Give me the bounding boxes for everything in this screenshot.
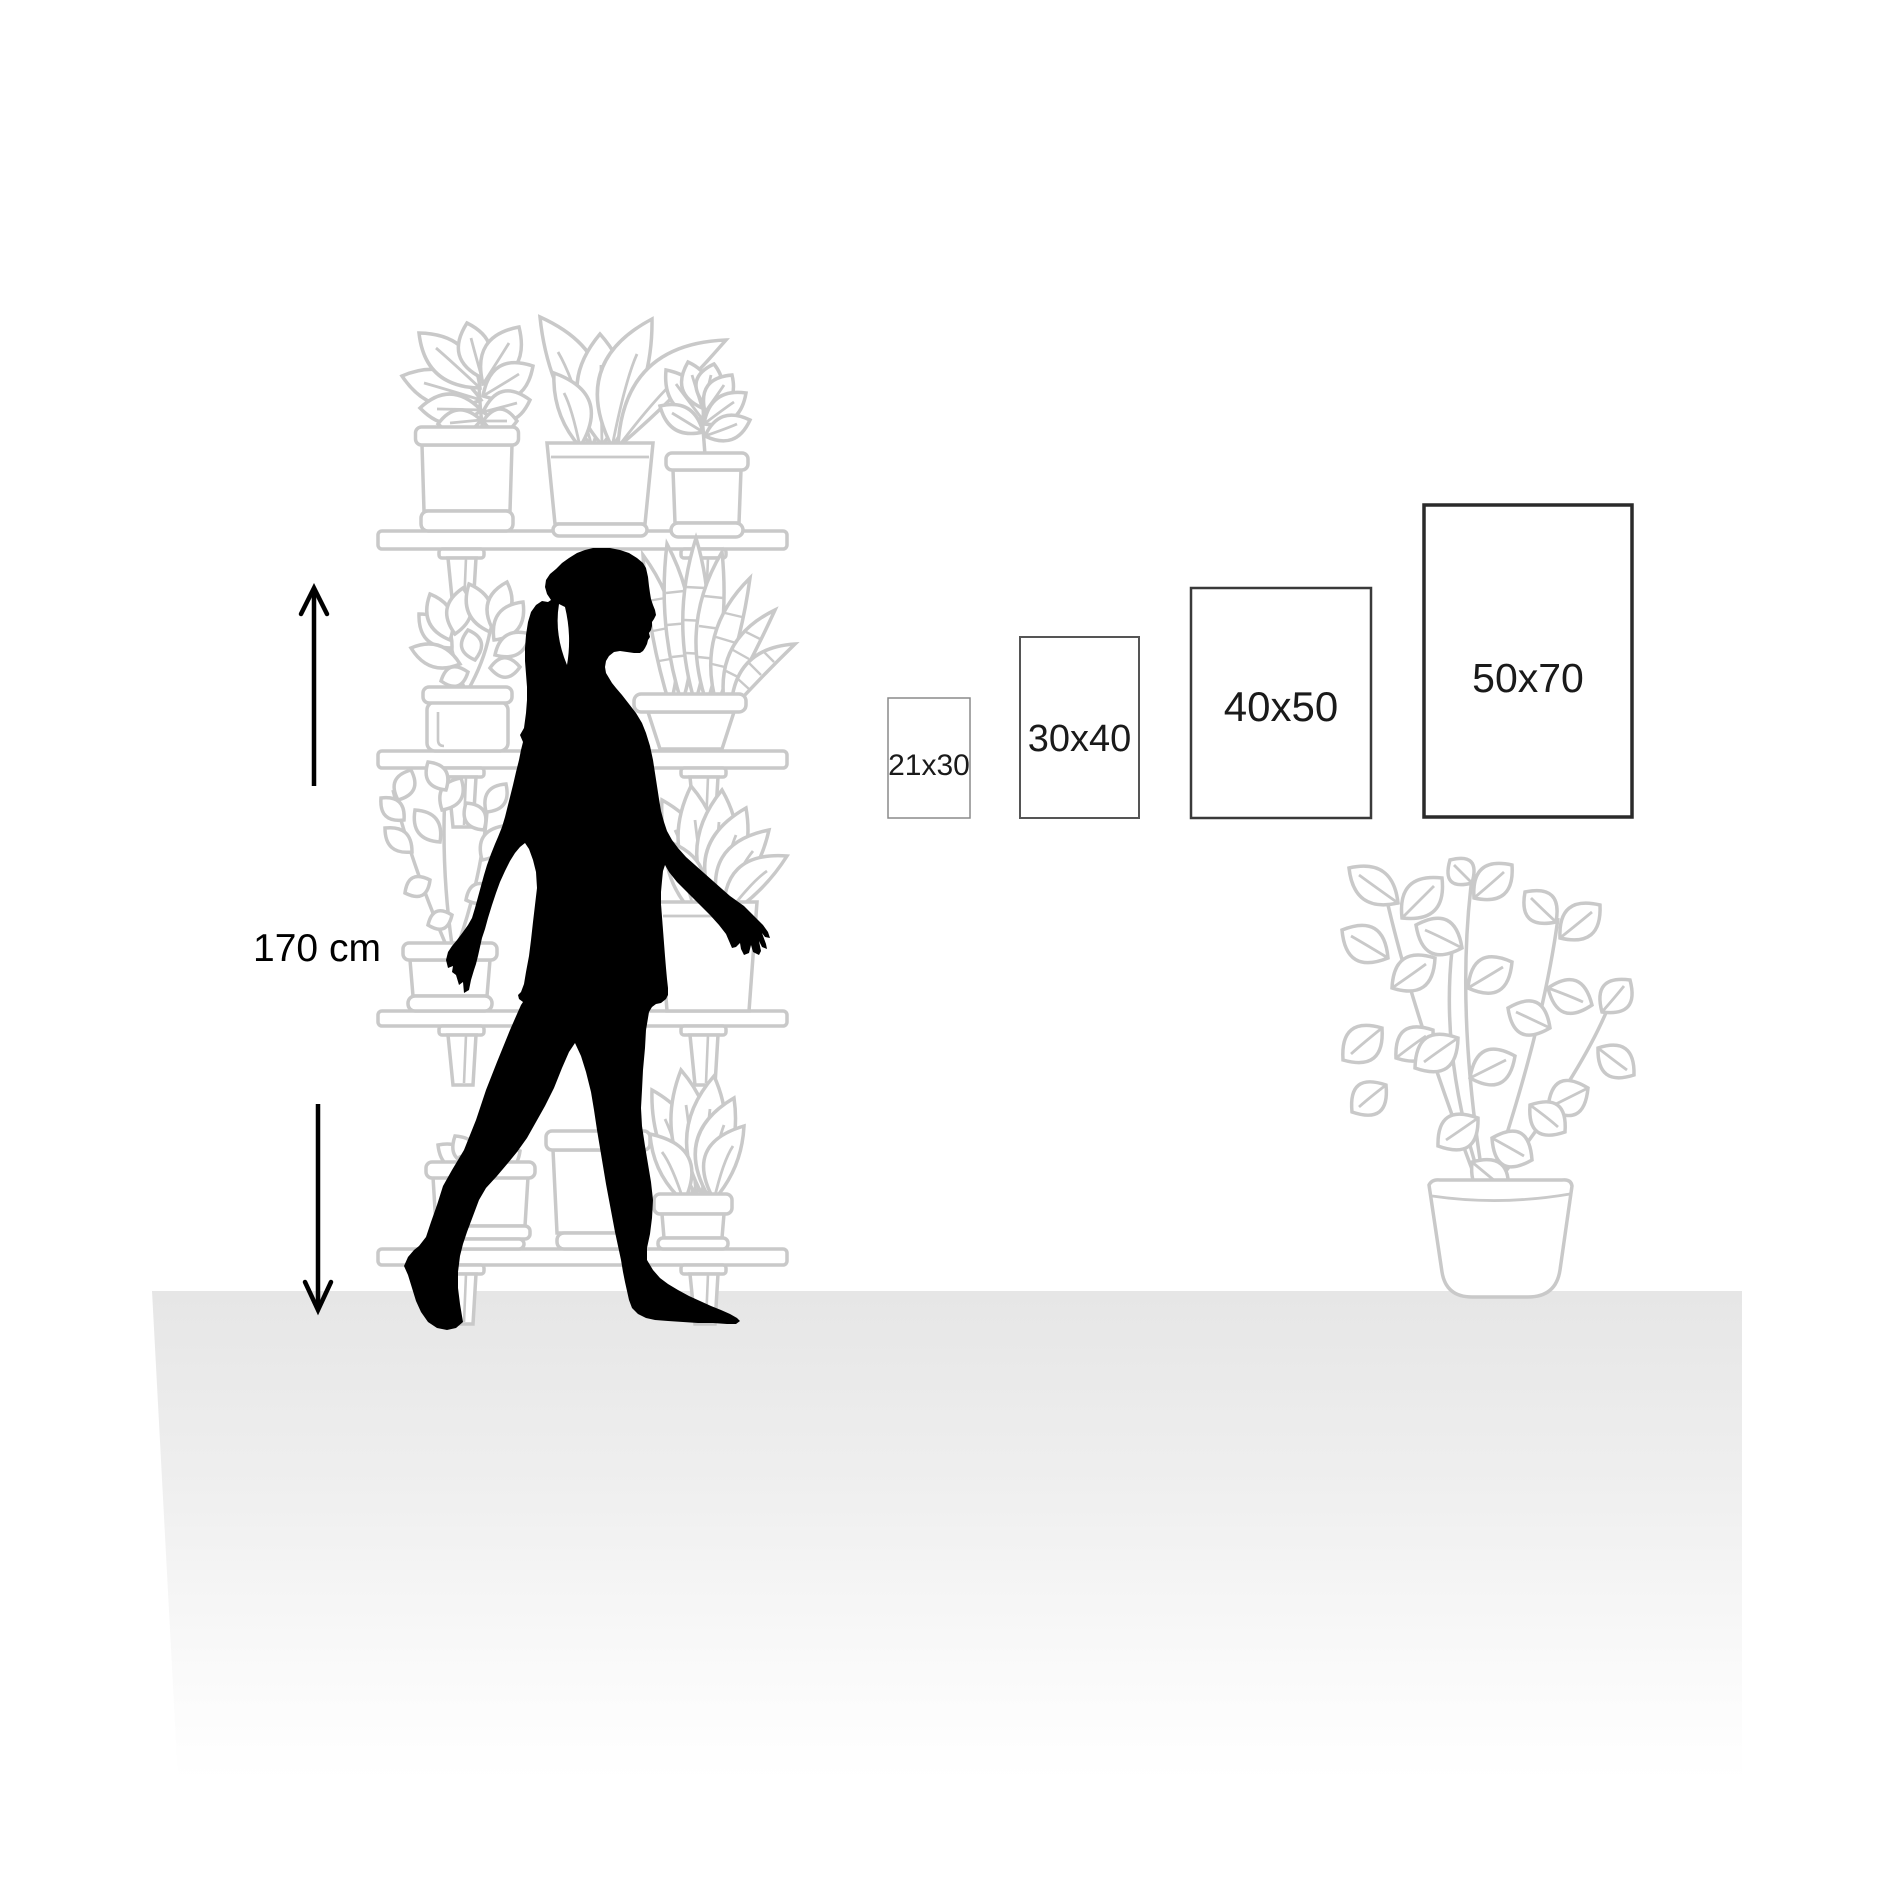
svg-text:170 cm: 170 cm (253, 927, 381, 970)
svg-text:50x70: 50x70 (1472, 655, 1584, 701)
svg-text:30x40: 30x40 (1028, 718, 1132, 760)
svg-text:40x50: 40x50 (1224, 683, 1338, 730)
svg-text:21x30: 21x30 (888, 749, 970, 782)
